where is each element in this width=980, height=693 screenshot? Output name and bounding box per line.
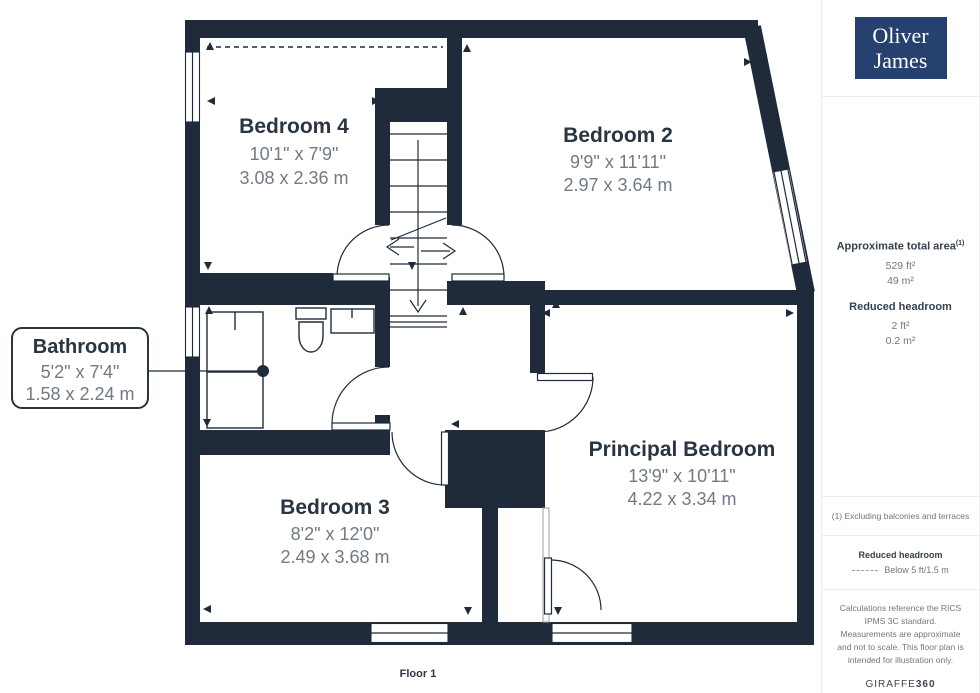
floorplan-page: Bedroom 4 10'1" x 7'9" 3.08 x 2.36 m Bed… <box>0 0 980 693</box>
room-metric: 2.97 x 3.64 m <box>563 175 672 195</box>
total-area-title: Approximate total area(1) <box>822 240 979 253</box>
logo-line-2: James <box>874 48 928 73</box>
window <box>371 624 448 643</box>
room-name: Bedroom 3 <box>280 496 390 519</box>
walls <box>185 20 814 645</box>
total-area-imperial: 529 ft² <box>822 259 979 274</box>
window <box>552 624 632 643</box>
room-label-principal-bedroom: Principal Bedroom 13'9" x 10'11" 4.22 x … <box>589 438 776 509</box>
room-metric: 3.08 x 2.36 m <box>239 168 348 188</box>
brand-logo-panel: Oliver James <box>822 0 979 97</box>
total-area-metric: 49 m² <box>822 274 979 289</box>
room-imperial: 8'2" x 12'0" <box>291 524 380 544</box>
door-bedroom-2 <box>452 225 504 281</box>
room-name: Bedroom 4 <box>239 115 349 138</box>
logo-line-1: Oliver <box>872 23 928 48</box>
footnote-panel: (1) Excluding balconies and terraces <box>822 497 979 536</box>
area-summary-panel: Approximate total area(1) 529 ft² 49 m² … <box>822 97 979 497</box>
reduced-headroom-title: Reduced headroom <box>822 301 979 313</box>
room-metric: 2.49 x 3.68 m <box>280 547 389 567</box>
room-imperial: 13'9" x 10'11" <box>628 466 735 486</box>
bathroom-fixtures <box>207 308 374 428</box>
room-label-bedroom-3: Bedroom 3 8'2" x 12'0" 2.49 x 3.68 m <box>280 496 390 567</box>
callout-anchor-dot <box>257 365 269 377</box>
door-bedroom-3 <box>392 432 449 485</box>
room-imperial: 9'9" x 11'11" <box>570 152 666 172</box>
reduced-headroom-imperial: 2 ft² <box>822 319 979 334</box>
room-name: Bathroom <box>33 336 127 358</box>
sink-icon <box>331 309 374 333</box>
door-principal-bedroom <box>538 374 594 433</box>
disclaimer-panel: Calculations reference the RICS IPMS 3C … <box>822 590 979 690</box>
door-principal-secondary <box>543 508 601 622</box>
room-imperial: 10'1" x 7'9" <box>250 144 339 164</box>
room-label-bedroom-4: Bedroom 4 10'1" x 7'9" 3.08 x 2.36 m <box>239 115 349 188</box>
room-metric: 1.58 x 2.24 m <box>25 384 134 404</box>
floor-label: Floor 1 <box>400 668 437 680</box>
brand-logo: Oliver James <box>855 17 947 79</box>
window <box>186 307 200 357</box>
door-bedroom-4 <box>333 225 389 281</box>
room-metric: 4.22 x 3.34 m <box>627 489 736 509</box>
info-sidebar: Oliver James Approximate total area(1) 5… <box>821 0 980 693</box>
toilet-icon <box>296 308 326 352</box>
window <box>774 170 806 265</box>
room-label-bedroom-2: Bedroom 2 9'9" x 11'11" 2.97 x 3.64 m <box>563 124 673 195</box>
reduced-headroom-legend: Reduced headroom Below 5 ft/1.5 m <box>822 536 979 590</box>
footnote-text: (1) Excluding balconies and terraces <box>832 511 970 521</box>
floorplan-drawing: Bedroom 4 10'1" x 7'9" 3.08 x 2.36 m Bed… <box>0 0 820 693</box>
bathroom-callout: Bathroom 5'2" x 7'4" 1.58 x 2.24 m <box>12 328 269 408</box>
shower-icon <box>207 312 263 428</box>
dashed-line-sample <box>852 570 878 571</box>
staircase <box>387 134 455 327</box>
footnote-marker: (1) <box>956 240 965 247</box>
legend-title: Reduced headroom <box>858 550 942 560</box>
reduced-headroom-metric: 0.2 m² <box>822 334 979 349</box>
room-imperial: 5'2" x 7'4" <box>41 362 120 382</box>
giraffe360-brand: GIRAFFE360 <box>822 679 979 690</box>
window <box>186 52 200 122</box>
room-name: Bedroom 2 <box>563 124 673 147</box>
legend-value: Below 5 ft/1.5 m <box>884 565 949 575</box>
disclaimer-text: Calculations reference the RICS IPMS 3C … <box>837 602 965 667</box>
room-name: Principal Bedroom <box>589 438 776 461</box>
